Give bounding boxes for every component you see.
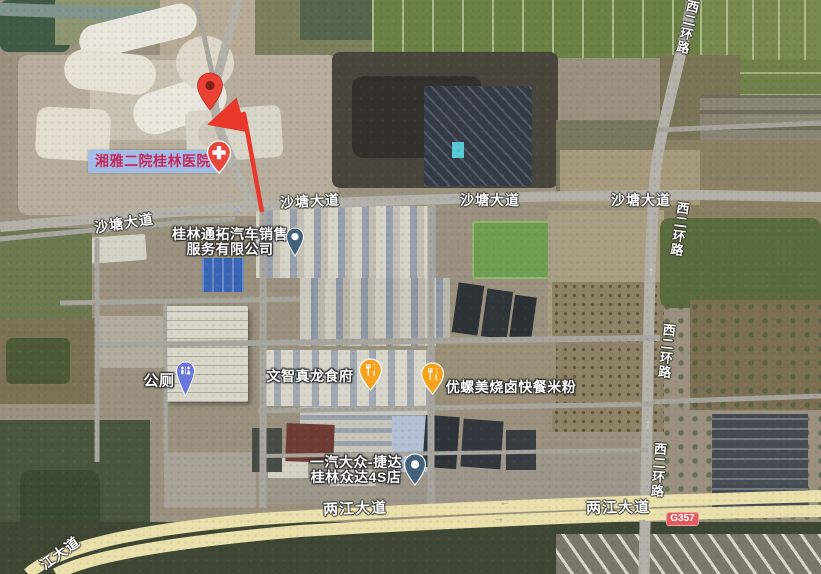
imagery-texture (0, 0, 821, 574)
road-direction-arrow: ↓ (658, 191, 664, 202)
poi-label-line: 一汽大众-捷达 (298, 455, 414, 470)
restaurant-pin[interactable] (358, 358, 383, 391)
road-direction-arrow: → (232, 206, 243, 217)
road-direction-arrow: → (447, 192, 458, 203)
road-direction-arrow: ↑ (645, 420, 651, 431)
road-label-shatang: 沙塘大道 (460, 190, 520, 210)
hospital-pin[interactable] (206, 140, 232, 174)
blue-dot-pin[interactable] (285, 227, 305, 257)
poi-label-youluomei-noodle[interactable]: 优螺美烧卤快餐米粉 (446, 377, 577, 397)
route-shield-badge: G357 (666, 512, 699, 526)
poi-label-public-toilet[interactable]: 公厕 (143, 370, 174, 391)
road-direction-arrow: ← (500, 498, 511, 509)
restaurant-pin[interactable] (420, 362, 445, 395)
poi-label-wenzhi-restaurant[interactable]: 文智真龙食府 (267, 366, 354, 386)
road-label-shatang: 沙塘大道 (280, 189, 341, 212)
highlighted-place-label[interactable]: 湘雅二院桂林医院 (88, 150, 218, 173)
poi-label-line: 桂林众达4S店 (298, 470, 414, 485)
road-direction-arrow: ↑ (648, 267, 654, 278)
road-label-xierhuan: 西二环路 (650, 442, 667, 499)
road-direction-arrow: → (637, 515, 648, 526)
destination-pin[interactable] (196, 72, 224, 112)
road-direction-arrow: ← (225, 191, 236, 202)
road-label-liangjiang: 两江大道 (323, 496, 388, 519)
blue-dot-pin[interactable] (403, 453, 427, 486)
poi-label-tongtuo-auto[interactable]: 桂林通拓汽车销售 服务有限公司 (170, 227, 290, 257)
poi-label-jetta-4s[interactable]: 一汽大众-捷达 桂林众达4S店 (298, 455, 414, 485)
road-direction-arrow: → (494, 514, 505, 525)
restroom-pin[interactable] (175, 361, 196, 397)
satellite-map-canvas[interactable]: 沙塘大道 沙塘大道 沙塘大道 沙塘大道 两江大道 两江大道 江大道 西二环路 西… (0, 0, 821, 574)
poi-label-line: 服务有限公司 (170, 242, 290, 257)
poi-label-line: 桂林通拓汽车销售 (170, 227, 290, 242)
